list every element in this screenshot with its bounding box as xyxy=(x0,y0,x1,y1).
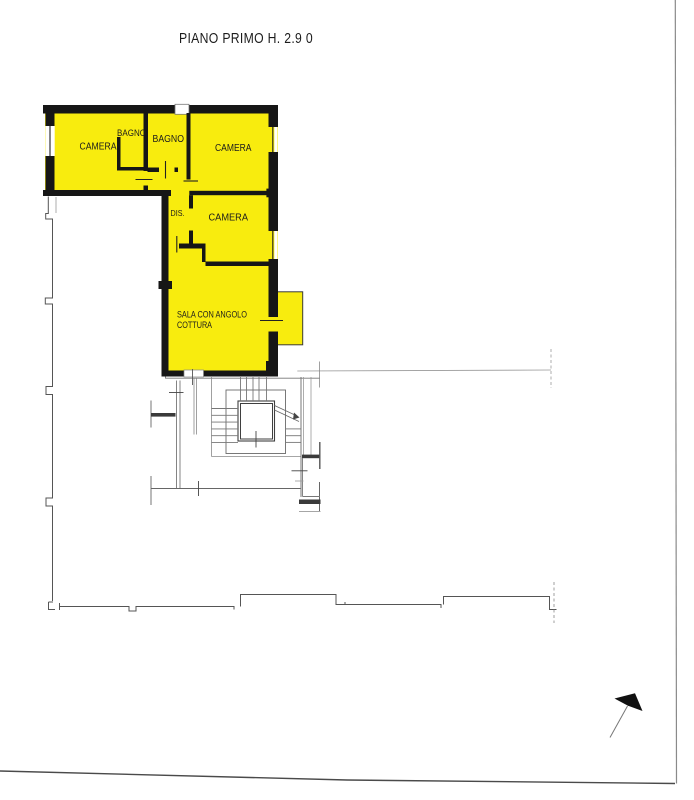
svg-text:COTTURA: COTTURA xyxy=(177,320,213,330)
svg-text:BAGNO: BAGNO xyxy=(153,134,185,145)
svg-text:PIANO PRIMO H. 2.9 0: PIANO PRIMO H. 2.9 0 xyxy=(179,30,313,47)
svg-text:CAMERA: CAMERA xyxy=(215,143,252,154)
svg-text:CAMERA: CAMERA xyxy=(209,213,249,224)
svg-text:CAMERA: CAMERA xyxy=(80,142,117,153)
svg-text:DIS.: DIS. xyxy=(171,209,185,218)
svg-text:BAGNO: BAGNO xyxy=(117,128,146,139)
svg-text:SALA CON ANGOLO: SALA CON ANGOLO xyxy=(177,310,247,320)
